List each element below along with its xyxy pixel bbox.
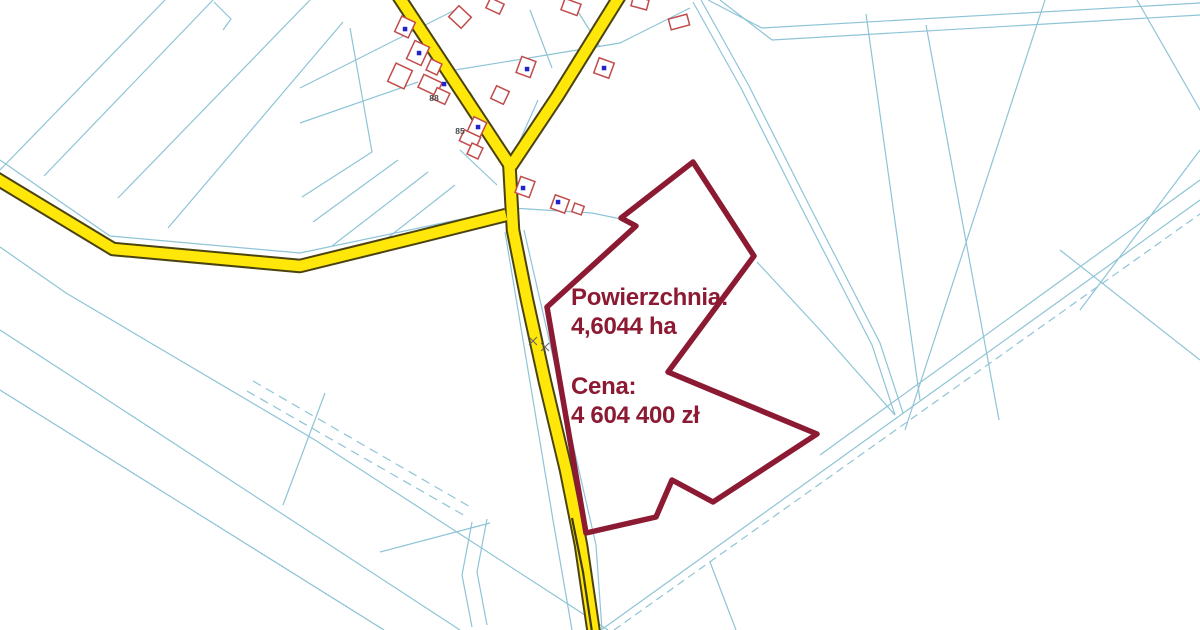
- parcel-info-overlay: Powierzchnia: 4,6044 ha Cena: 4 604 400 …: [571, 284, 728, 429]
- parcel-line: [313, 160, 398, 222]
- road-fills: [0, 0, 621, 630]
- parcel-line: [443, 8, 690, 72]
- parcel-line: [0, 0, 165, 170]
- parcel-line: [820, 180, 1200, 455]
- parcel-line: [905, 0, 1045, 430]
- road-west: [0, 177, 506, 266]
- parcel-line: [1060, 250, 1200, 360]
- parcel-line: [302, 152, 372, 197]
- parcel-line: [530, 10, 552, 68]
- address-point-icon: [521, 186, 526, 191]
- address-point-icon: [556, 200, 561, 205]
- house-number-label: 85: [455, 126, 465, 136]
- building: [449, 6, 472, 29]
- cadastral-map-image: 88 85 Powierzchnia: 4,6044 ha Cena: 4 60…: [0, 0, 1200, 630]
- highlighted-parcel-boundary: [547, 162, 817, 533]
- parcel-strip-line: [477, 519, 487, 625]
- address-point-icon: [602, 66, 607, 71]
- house-number-label: 88: [429, 93, 439, 103]
- parcel-line: [118, 0, 310, 198]
- address-point-icon: [525, 67, 530, 72]
- area-label: Powierzchnia:: [571, 284, 728, 311]
- parcel-line: [168, 22, 343, 228]
- address-point-icon: [442, 82, 447, 87]
- parcel-line: [300, 82, 418, 123]
- area-value: 4,6044 ha: [571, 313, 677, 340]
- building: [491, 86, 510, 105]
- building: [486, 0, 504, 14]
- parcel-line: [350, 28, 372, 152]
- parcel-strip-line: [708, 0, 1200, 28]
- parcel-line: [710, 562, 736, 630]
- parcel-line: [1080, 150, 1200, 310]
- parcel-line: [0, 330, 460, 630]
- parcel-line: [247, 391, 467, 517]
- parcel-line: [757, 262, 895, 415]
- parcel-strip-line: [720, 0, 1200, 40]
- address-point-icon: [403, 27, 408, 32]
- parcel-line: [0, 390, 384, 630]
- parcel-line: [866, 14, 920, 400]
- address-point-icon: [476, 125, 481, 130]
- parcel-line: [253, 381, 472, 508]
- parcel-strip-line: [462, 522, 472, 627]
- parcel-line: [926, 25, 999, 420]
- building: [561, 0, 581, 16]
- parcel-line: [380, 523, 490, 552]
- building: [572, 203, 584, 215]
- price-value: 4 604 400 zł: [571, 402, 700, 429]
- price-label: Cena:: [571, 373, 636, 400]
- road-northeast: [511, 0, 621, 166]
- parcel-line: [214, 2, 231, 30]
- parcel-line: [283, 393, 325, 505]
- address-point-icon: [417, 51, 422, 56]
- building: [631, 0, 649, 10]
- parcel-line: [44, 0, 213, 176]
- map-canvas: 88 85 Powierzchnia: 4,6044 ha Cena: 4 60…: [0, 0, 1200, 630]
